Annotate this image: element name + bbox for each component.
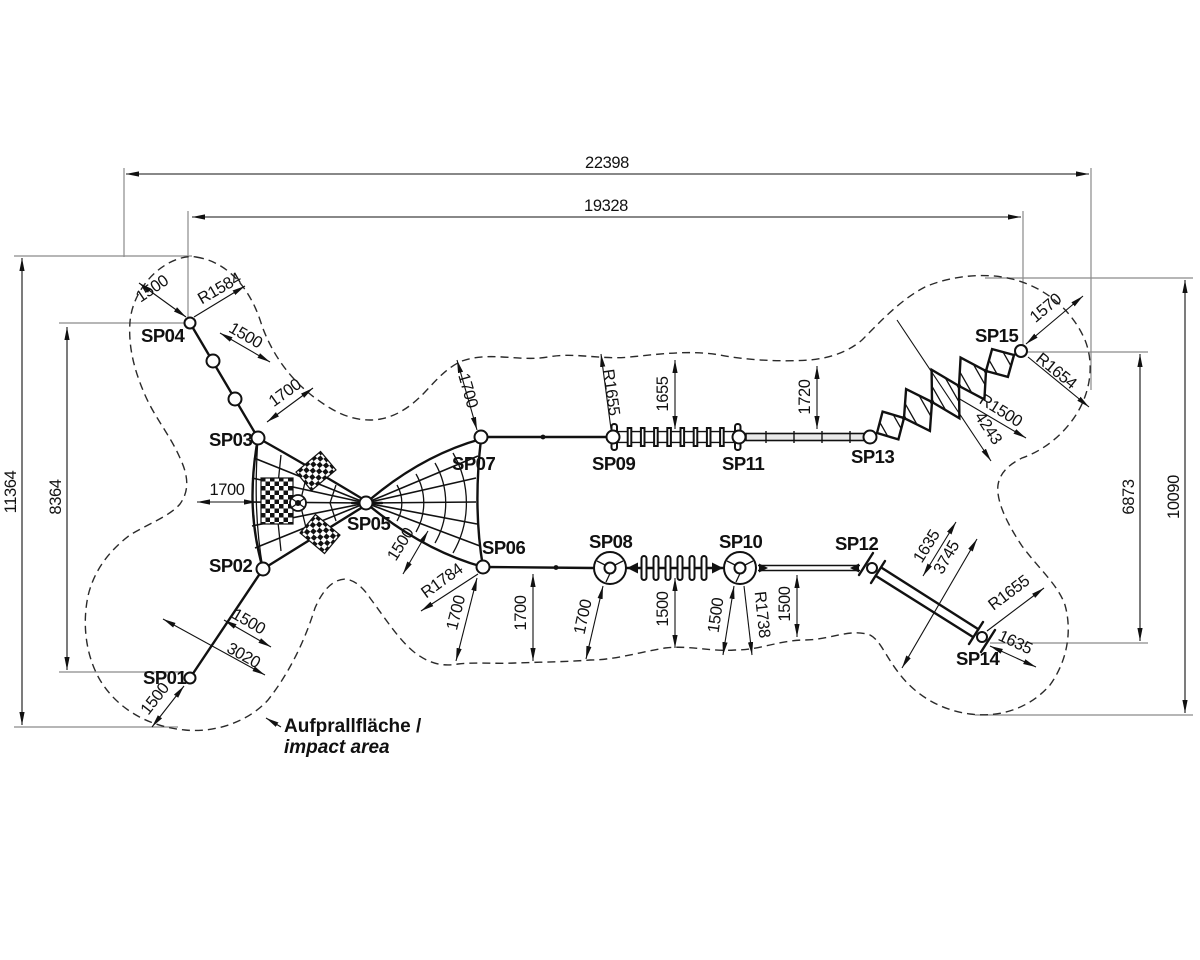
post-sp07 xyxy=(475,431,488,444)
dim-sp08-clearance-value: 1700 xyxy=(571,598,596,636)
label-sp05: SP05 xyxy=(347,513,390,534)
dim-mid-bottom-2: 1500 xyxy=(654,578,675,648)
dim-sp15-radius: R1654 xyxy=(1028,349,1089,407)
dim-height-right-inner-value: 6873 xyxy=(1120,479,1138,514)
diamond-net xyxy=(877,349,1021,439)
post-sp05 xyxy=(360,497,373,510)
impact-area-label-de: Aufprallfläche / xyxy=(284,716,422,737)
dim-beam-clearance: 1720 xyxy=(796,366,817,429)
label-sp01: SP01 xyxy=(143,667,186,688)
label-sp11: SP11 xyxy=(722,453,764,474)
dim-seg-sp03-value: 1700 xyxy=(266,375,305,410)
dim-sp08-clearance: 1700 xyxy=(571,586,603,659)
dim-ladder-clearance-value: 1655 xyxy=(654,376,672,411)
label-sp08: SP08 xyxy=(589,531,632,552)
parallel-bars xyxy=(859,553,995,652)
dim-mid-bottom-1-value: 1700 xyxy=(512,595,530,630)
dim-width-inner-value: 19328 xyxy=(584,197,628,215)
post-sp02 xyxy=(257,563,270,576)
dim-ladder-clearance: 1655 xyxy=(654,360,675,429)
dimensions: 22398 19328 11364 8364 10090 6873 1500 xyxy=(2,154,1185,727)
label-sp02: SP02 xyxy=(209,555,252,576)
label-sp15: SP15 xyxy=(975,325,1018,346)
dim-height-right-inner: 6873 xyxy=(1120,354,1140,641)
dim-sp09-radius-value: R1655 xyxy=(599,368,623,417)
triangle-net xyxy=(251,438,366,569)
dim-net-left-clearance: 1700 xyxy=(197,481,257,502)
dim-sp07-clearance: 1700 xyxy=(454,360,481,430)
post-sp08 xyxy=(594,552,626,584)
dim-sp14-radius-value: R1655 xyxy=(985,572,1033,615)
horizontal-ladder xyxy=(612,424,741,450)
dim-sp15-radius-value: R1654 xyxy=(1032,349,1080,392)
rope-sp06-sp08 xyxy=(483,567,594,568)
post-sp06 xyxy=(477,561,490,574)
dim-width-total: 22398 xyxy=(126,154,1089,174)
dim-sp05-edge: 1500 xyxy=(384,525,428,574)
dim-height-left-inner-value: 8364 xyxy=(47,479,65,514)
dim-sp04-clearance-value: 1500 xyxy=(133,271,172,306)
dim-sp14-radius: R1655 xyxy=(985,572,1044,631)
dim-mid-bottom-3: 1500 xyxy=(776,575,797,637)
dim-height-right-total-value: 10090 xyxy=(1165,475,1183,519)
label-sp10: SP10 xyxy=(719,531,762,552)
balance-beam xyxy=(746,431,864,443)
dim-sp10-clearance-value: 1500 xyxy=(705,596,728,633)
impact-area-annotation: Aufprallfläche / impact area xyxy=(266,716,422,758)
post-sp13 xyxy=(864,431,877,444)
label-sp06: SP06 xyxy=(482,537,525,558)
dim-sp09-radius: R1655 xyxy=(599,354,623,429)
label-sp12: SP12 xyxy=(835,533,878,554)
post-sp04 xyxy=(185,318,196,329)
dim-height-right-total: 10090 xyxy=(1165,280,1185,713)
rope-ball-2 xyxy=(229,393,242,406)
dim-net-left-clearance-value: 1700 xyxy=(209,481,244,499)
wobble-element xyxy=(627,556,723,580)
dim-seg-sp04: 1500 xyxy=(220,319,270,362)
post-sp15 xyxy=(1015,345,1027,357)
dim-height-left-total: 11364 xyxy=(2,258,22,725)
dim-mid-bottom-2-value: 1500 xyxy=(654,591,672,626)
dim-seg-sp03: 1700 xyxy=(266,375,313,422)
dim-sp15-clearance-value: 1570 xyxy=(1027,290,1066,326)
checker-patch-2 xyxy=(296,452,336,491)
dim-sp10-radius-value: R1738 xyxy=(751,590,774,638)
checker-patch-3 xyxy=(300,515,340,554)
dim-sp10-clearance: 1500 xyxy=(705,586,734,655)
beam-sp10-sp12 xyxy=(758,564,860,573)
post-sp10 xyxy=(724,552,756,584)
technical-drawing-page: 22398 19328 11364 8364 10090 6873 1500 xyxy=(0,0,1200,960)
impact-area-label-en: impact area xyxy=(284,737,390,758)
dim-sp04-radius-value: R1584 xyxy=(195,269,245,308)
dim-sp02-part-value: 1500 xyxy=(229,605,269,638)
drawing-svg: 22398 19328 11364 8364 10090 6873 1500 xyxy=(0,0,1200,960)
dim-sp06-radius: R1784 xyxy=(418,560,478,611)
label-sp13: SP13 xyxy=(851,446,894,467)
dim-beam-clearance-value: 1720 xyxy=(796,379,814,414)
dim-width-total-value: 22398 xyxy=(585,154,629,172)
dim-sp04-clearance: 1500 xyxy=(133,271,186,317)
dim-sp07-clearance-value: 1700 xyxy=(454,371,481,410)
dim-sp14-clearance-value: 1635 xyxy=(995,627,1035,658)
dim-sp06-clearance: 1700 xyxy=(443,578,477,661)
post-sp03 xyxy=(252,432,265,445)
dim-width-inner: 19328 xyxy=(192,197,1021,217)
label-sp03: SP03 xyxy=(209,429,252,450)
label-sp09: SP09 xyxy=(592,453,635,474)
dim-sp15-clearance: 1570 xyxy=(1026,290,1083,344)
post-sp09 xyxy=(607,431,620,444)
checker-patch-1 xyxy=(261,478,293,524)
dim-mid-bottom-1: 1700 xyxy=(512,574,533,661)
label-sp07: SP07 xyxy=(452,453,495,474)
rope-ball-1 xyxy=(207,355,220,368)
dim-height-left-inner: 8364 xyxy=(47,327,67,670)
post-sp11 xyxy=(733,431,746,444)
label-sp04: SP04 xyxy=(141,325,185,346)
dim-sp04-radius: R1584 xyxy=(194,269,245,317)
dim-height-left-total-value: 11364 xyxy=(2,470,20,513)
label-sp14: SP14 xyxy=(956,648,1000,669)
dim-sp02-total-value: 3020 xyxy=(224,639,264,672)
dim-mid-bottom-3-value: 1500 xyxy=(776,586,794,621)
